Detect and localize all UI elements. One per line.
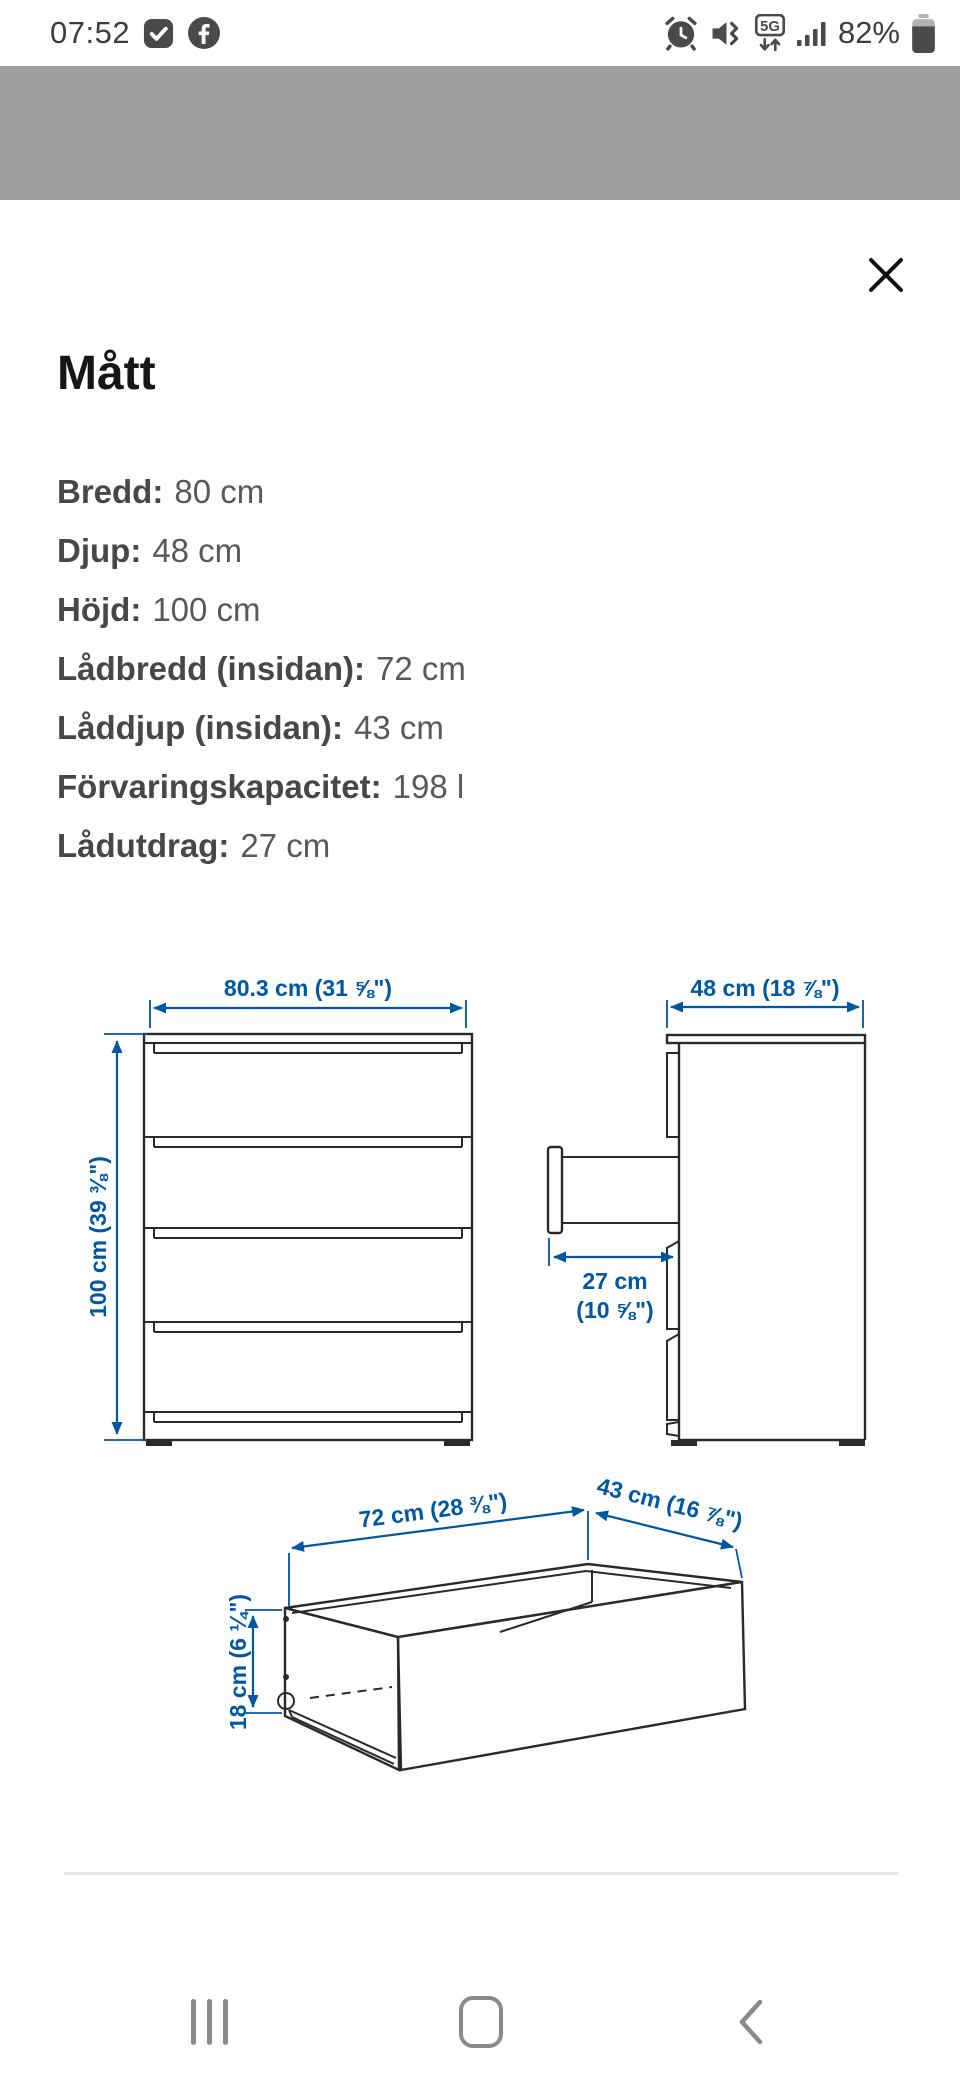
spec-row-laddjup: Låddjup (insidan): 43 cm	[57, 698, 466, 757]
spec-row-bredd: Bredd: 80 cm	[57, 462, 466, 521]
spec-value: 72 cm	[376, 650, 466, 688]
spec-value: 100 cm	[152, 591, 260, 629]
status-bar: 07:52 5G	[0, 0, 960, 66]
spec-label: Djup:	[57, 532, 141, 570]
spec-list: Bredd: 80 cm Djup: 48 cm Höjd: 100 cm Lå…	[57, 462, 466, 875]
network-5g-icon: 5G	[754, 14, 786, 52]
status-bar-left: 07:52	[50, 0, 221, 66]
spec-label: Bredd:	[57, 473, 163, 511]
front-view-drawing	[144, 1034, 472, 1446]
recents-icon	[191, 1999, 196, 2045]
spec-value: 198 l	[393, 768, 465, 806]
recents-button[interactable]	[191, 1999, 228, 2045]
signal-bars-icon	[797, 19, 827, 47]
close-icon	[865, 254, 907, 296]
spec-value: 48 cm	[152, 532, 242, 570]
modal-backdrop[interactable]	[0, 66, 960, 200]
close-button[interactable]	[865, 254, 907, 296]
side-view-drawing	[548, 1035, 865, 1446]
status-bar-right: 5G 82%	[663, 0, 936, 66]
spec-row-forvaringskapacitet: Förvaringskapacitet: 198 l	[57, 757, 466, 816]
spec-row-ladbredd: Lådbredd (insidan): 72 cm	[57, 639, 466, 698]
sheet-title: Mått	[57, 346, 156, 401]
clock-time: 07:52	[50, 15, 130, 51]
spec-row-ladutdrag: Lådutdrag: 27 cm	[57, 816, 466, 875]
mute-vibrate-icon	[710, 17, 743, 50]
spec-label: Höjd:	[57, 591, 141, 629]
facebook-icon	[187, 16, 221, 50]
network-5g-label: 5G	[760, 19, 780, 35]
screen: 07:52 5G	[0, 0, 960, 2080]
battery-percent: 82%	[838, 15, 900, 51]
spec-value: 43 cm	[354, 709, 444, 747]
spec-label: Låddjup (insidan):	[57, 709, 343, 747]
back-chevron-icon	[734, 1998, 766, 2046]
measurements-sheet: Mått Bredd: 80 cm Djup: 48 cm Höjd: 100 …	[0, 200, 960, 2080]
home-button[interactable]	[459, 1996, 503, 2048]
back-button[interactable]	[734, 1998, 766, 2049]
front-width-label: 80.3 cm (31 ⅝")	[224, 975, 392, 1001]
alarm-icon	[663, 15, 699, 51]
divider	[64, 1872, 898, 1875]
spec-label: Lådbredd (insidan):	[57, 650, 365, 688]
extension-label-line2: (10 ⅝")	[576, 1297, 653, 1323]
extension-label-line1: 27 cm	[582, 1268, 647, 1294]
battery-icon	[911, 14, 936, 53]
spec-row-hojd: Höjd: 100 cm	[57, 580, 466, 639]
drawer-isometric-drawing	[278, 1564, 745, 1770]
notification-check-square-icon	[142, 17, 175, 50]
spec-value: 80 cm	[174, 473, 264, 511]
drawer-width-label: 72 cm (28 ⅜")	[357, 1488, 508, 1533]
dimensions-diagram: 80.3 cm (31 ⅝") 100 cm (39 ⅜") 48 cm (18…	[0, 950, 960, 1830]
home-icon	[459, 1996, 503, 2048]
spec-label: Förvaringskapacitet:	[57, 768, 382, 806]
drawer-height-label: 18 cm (6 ¼")	[225, 1594, 251, 1730]
side-depth-label: 48 cm (18 ⅞")	[691, 975, 840, 1001]
drawer-depth-label: 43 cm (16 ⅞")	[595, 1472, 746, 1534]
spec-value: 27 cm	[240, 827, 330, 865]
spec-row-djup: Djup: 48 cm	[57, 521, 466, 580]
spec-label: Lådutdrag:	[57, 827, 229, 865]
height-label: 100 cm (39 ⅜")	[85, 1156, 111, 1318]
